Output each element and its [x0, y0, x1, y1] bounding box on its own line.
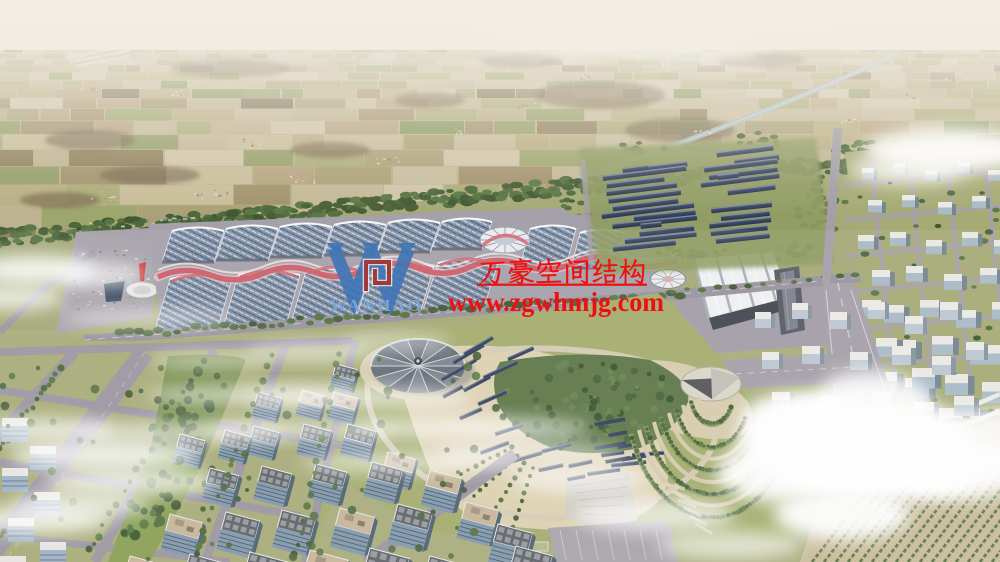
svg-text:www.zgwhmjg.com: www.zgwhmjg.com — [448, 286, 664, 317]
svg-text:WANHAO: WANHAO — [330, 296, 423, 315]
